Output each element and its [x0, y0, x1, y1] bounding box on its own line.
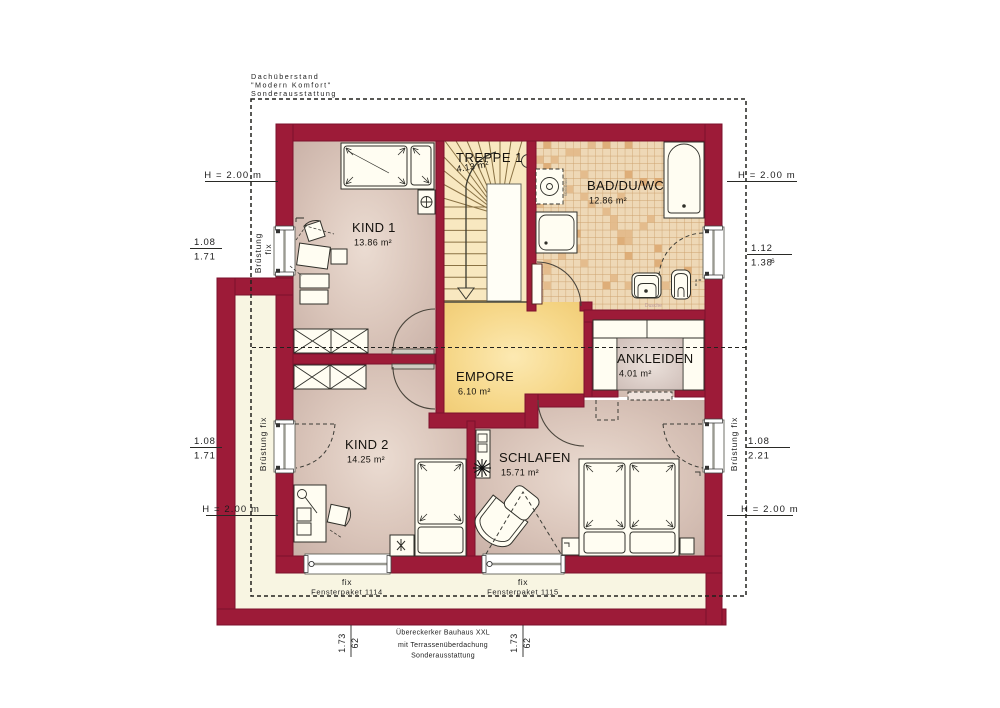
svg-text:Fensterpaket 1114: Fensterpaket 1114: [311, 588, 383, 597]
svg-text:BAD/DU/WC: BAD/DU/WC: [587, 178, 664, 193]
svg-text:H = 2.00 m: H = 2.00 m: [738, 170, 796, 181]
svg-text:fix: fix: [263, 244, 273, 255]
svg-text:fix: fix: [342, 577, 352, 587]
svg-text:EMPORE: EMPORE: [456, 369, 514, 384]
svg-text:Sonderausstattung: Sonderausstattung: [251, 89, 337, 98]
svg-text:Übereckerker Bauhaus XXL: Übereckerker Bauhaus XXL: [396, 629, 490, 637]
svg-text:ANKLEIDEN: ANKLEIDEN: [617, 351, 693, 366]
svg-text:überbaut: überbaut: [563, 177, 568, 196]
svg-text:H = 2.00 m: H = 2.00 m: [202, 504, 260, 515]
svg-text:Dusche: Dusche: [645, 303, 662, 309]
svg-text:1.08: 1.08: [194, 237, 216, 248]
svg-text:mit Terrassenüberdachung: mit Terrassenüberdachung: [398, 642, 488, 649]
svg-text:1.12: 1.12: [751, 243, 773, 254]
svg-text:H = 2.00 m: H = 2.00 m: [204, 170, 262, 181]
svg-text:KIND 2: KIND 2: [345, 437, 389, 452]
svg-text:H = 2.00 m: H = 2.00 m: [741, 504, 799, 515]
svg-text:15.71 m²: 15.71 m²: [501, 468, 539, 478]
svg-text:Fensterpaket 1115: Fensterpaket 1115: [487, 588, 559, 597]
svg-text:Brüstung: Brüstung: [253, 233, 263, 273]
svg-text:Brüstung fix: Brüstung fix: [258, 417, 268, 471]
svg-text:1.71: 1.71: [194, 252, 216, 263]
svg-text:1.08: 1.08: [194, 436, 216, 447]
svg-text:1.73: 1.73: [509, 633, 519, 653]
svg-text:1.38: 1.38: [751, 258, 773, 269]
svg-text:2.21: 2.21: [748, 451, 770, 462]
svg-text:62: 62: [522, 637, 532, 648]
svg-text:62: 62: [350, 637, 360, 648]
svg-text:6: 6: [771, 258, 775, 265]
svg-text:6.10 m²: 6.10 m²: [458, 387, 491, 397]
svg-text:12.86 m²: 12.86 m²: [589, 196, 627, 206]
svg-text:14.25 m²: 14.25 m²: [347, 455, 385, 465]
svg-text:4.01 m²: 4.01 m²: [619, 369, 652, 379]
svg-text:Sonderausstattung: Sonderausstattung: [411, 653, 475, 660]
svg-text:13.86 m²: 13.86 m²: [354, 238, 392, 248]
svg-text:1.73: 1.73: [337, 633, 347, 653]
svg-text:1.71: 1.71: [194, 451, 216, 462]
svg-text:fix: fix: [518, 577, 528, 587]
svg-text:SCHLAFEN: SCHLAFEN: [499, 450, 571, 465]
svg-text:KIND 1: KIND 1: [352, 220, 396, 235]
svg-text:Brüstung fix: Brüstung fix: [729, 417, 739, 471]
svg-text:1.08: 1.08: [748, 436, 770, 447]
